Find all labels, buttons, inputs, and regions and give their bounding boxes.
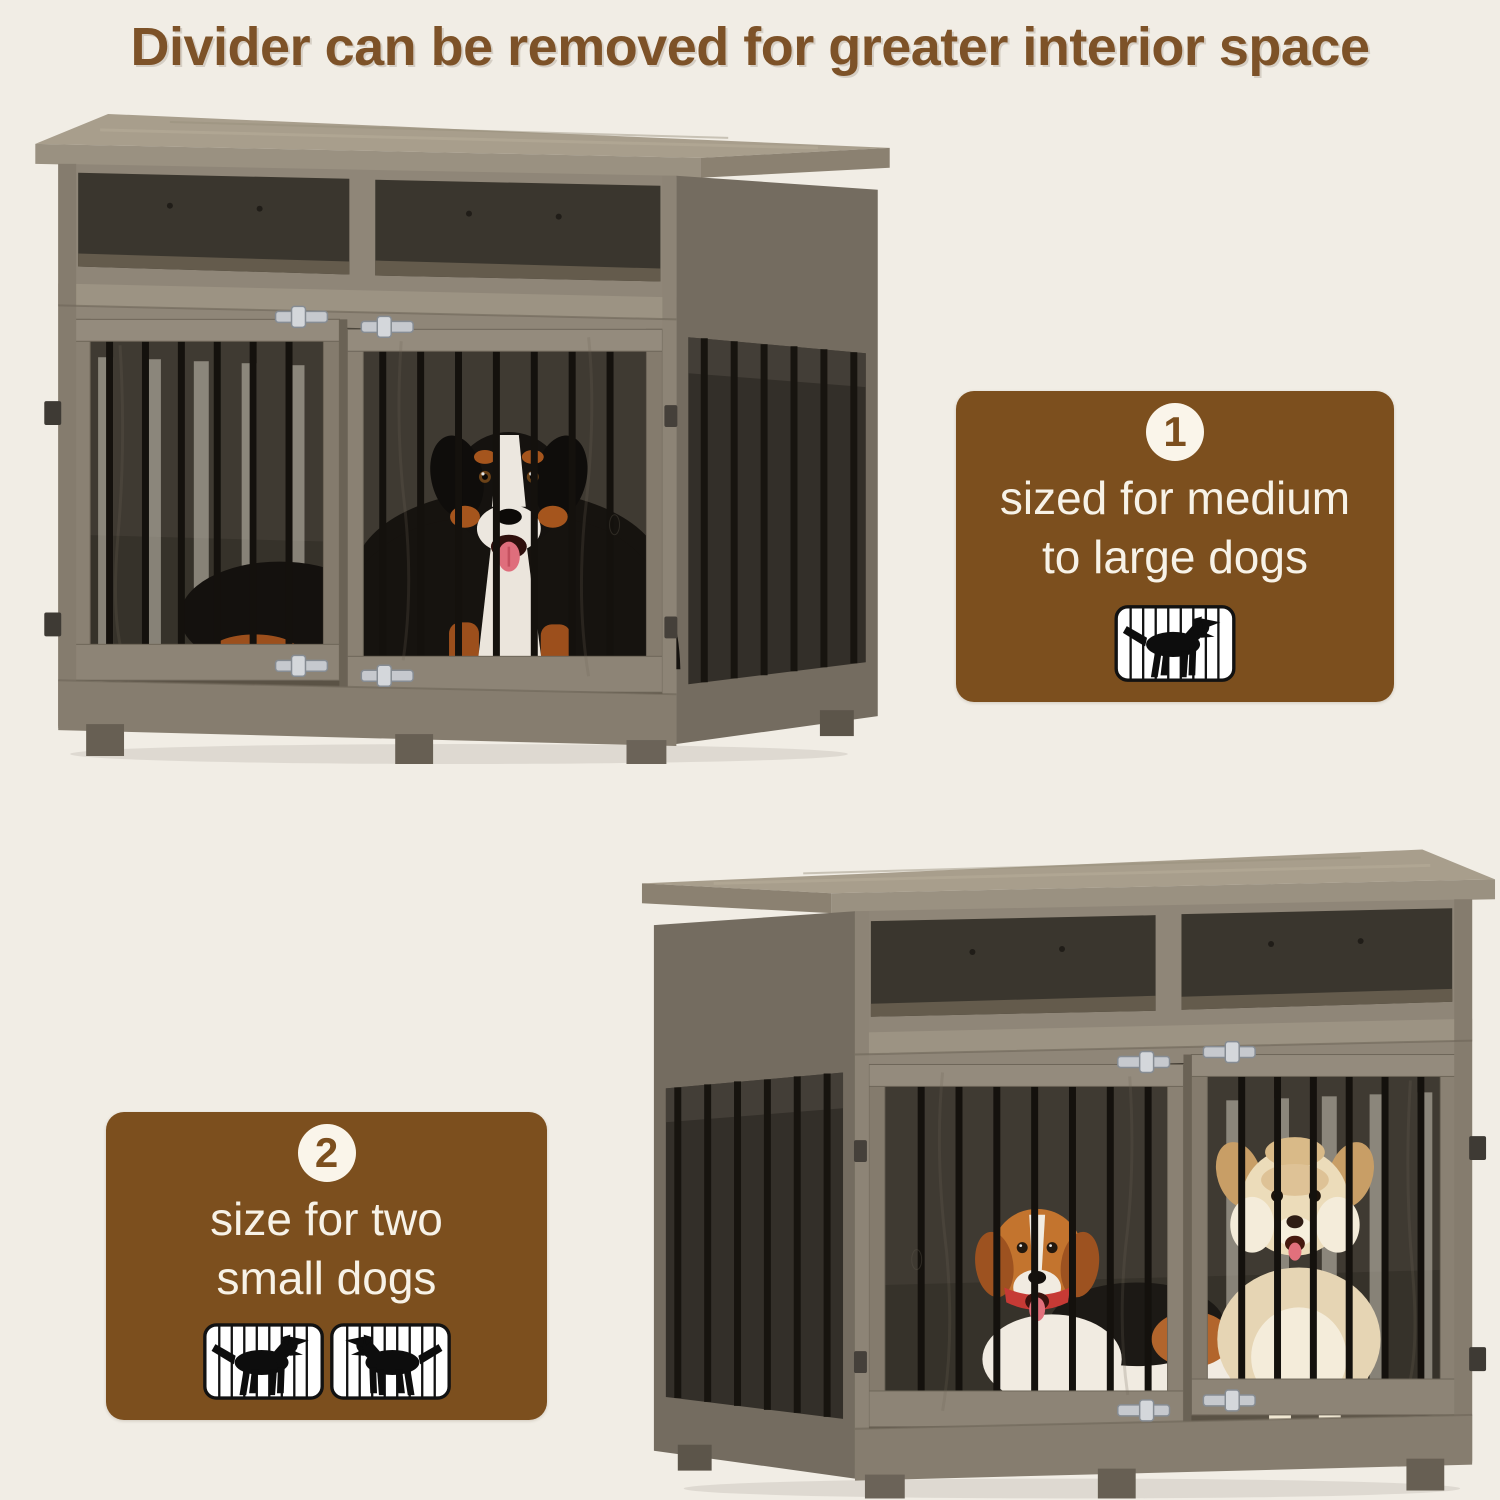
callout-text: sized for medium to large dogs (1000, 469, 1350, 587)
crate-illustration-two-dogs (634, 840, 1500, 1500)
page-title: Divider can be removed for greater inter… (0, 16, 1500, 78)
two-dogs-in-crates-icon (201, 1321, 453, 1407)
callout-number: 1 (1163, 411, 1186, 453)
crate-illustration-large-dog (28, 106, 900, 764)
callout-text: size for two small dogs (210, 1190, 443, 1308)
photo-crate-two-small-dogs (634, 840, 1500, 1500)
callout-two-small-dogs: 2 size for two small dogs (106, 1112, 547, 1420)
dog-in-crate-icon (1112, 603, 1238, 689)
product-infographic: Divider can be removed for greater inter… (0, 0, 1500, 1500)
callout-number: 2 (315, 1132, 338, 1174)
callout-number-badge: 2 (298, 1124, 356, 1182)
callout-number-badge: 1 (1146, 403, 1204, 461)
photo-crate-large-dog (28, 106, 900, 764)
callout-medium-large-dogs: 1 sized for medium to large dogs (956, 391, 1394, 702)
